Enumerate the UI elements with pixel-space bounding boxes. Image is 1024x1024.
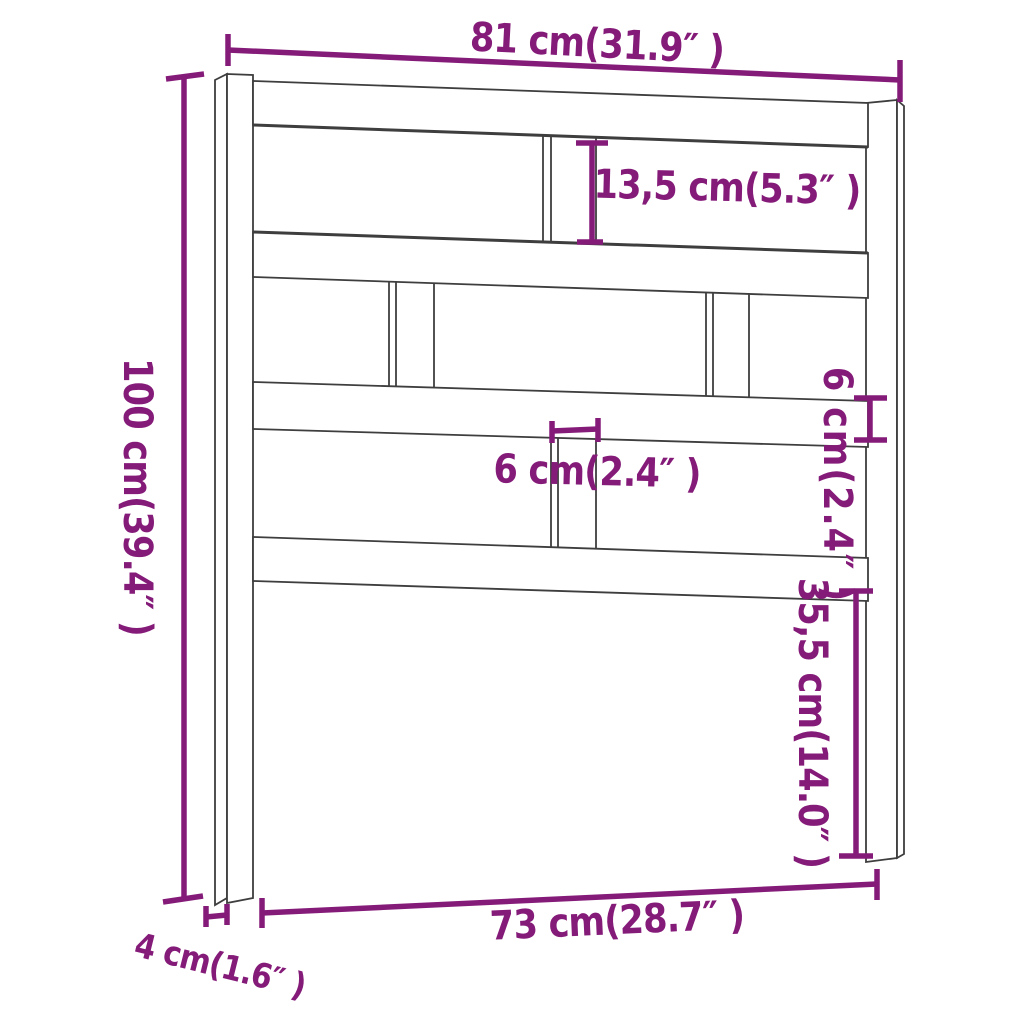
label-upper-gap-height: 13,5 cm(5.3″ ) — [593, 162, 861, 215]
dimension-diagram: 81 cm(31.9″ ) 13,5 cm(5.3″ ) 100 cm(39.4… — [0, 0, 1024, 1024]
slat-mid-right — [706, 292, 749, 397]
rails — [253, 81, 868, 601]
slat-upper-center — [543, 135, 596, 243]
label-rail-thickness: 6 cm(2.4″ ) — [814, 367, 860, 603]
label-center-slat-width: 6 cm(2.4″ ) — [493, 446, 701, 497]
dim-post-depth — [206, 904, 227, 927]
rail-3 — [253, 382, 868, 447]
dim-overall-height — [163, 74, 204, 902]
label-overall-height: 100 cm(39.4″ ) — [114, 358, 160, 636]
left-post — [215, 74, 253, 905]
label-lower-clearance: 35,5 cm(14.0″ ) — [789, 578, 835, 868]
slat-mid-left — [389, 282, 434, 388]
right-post — [866, 100, 904, 862]
rail-4 — [253, 537, 868, 601]
